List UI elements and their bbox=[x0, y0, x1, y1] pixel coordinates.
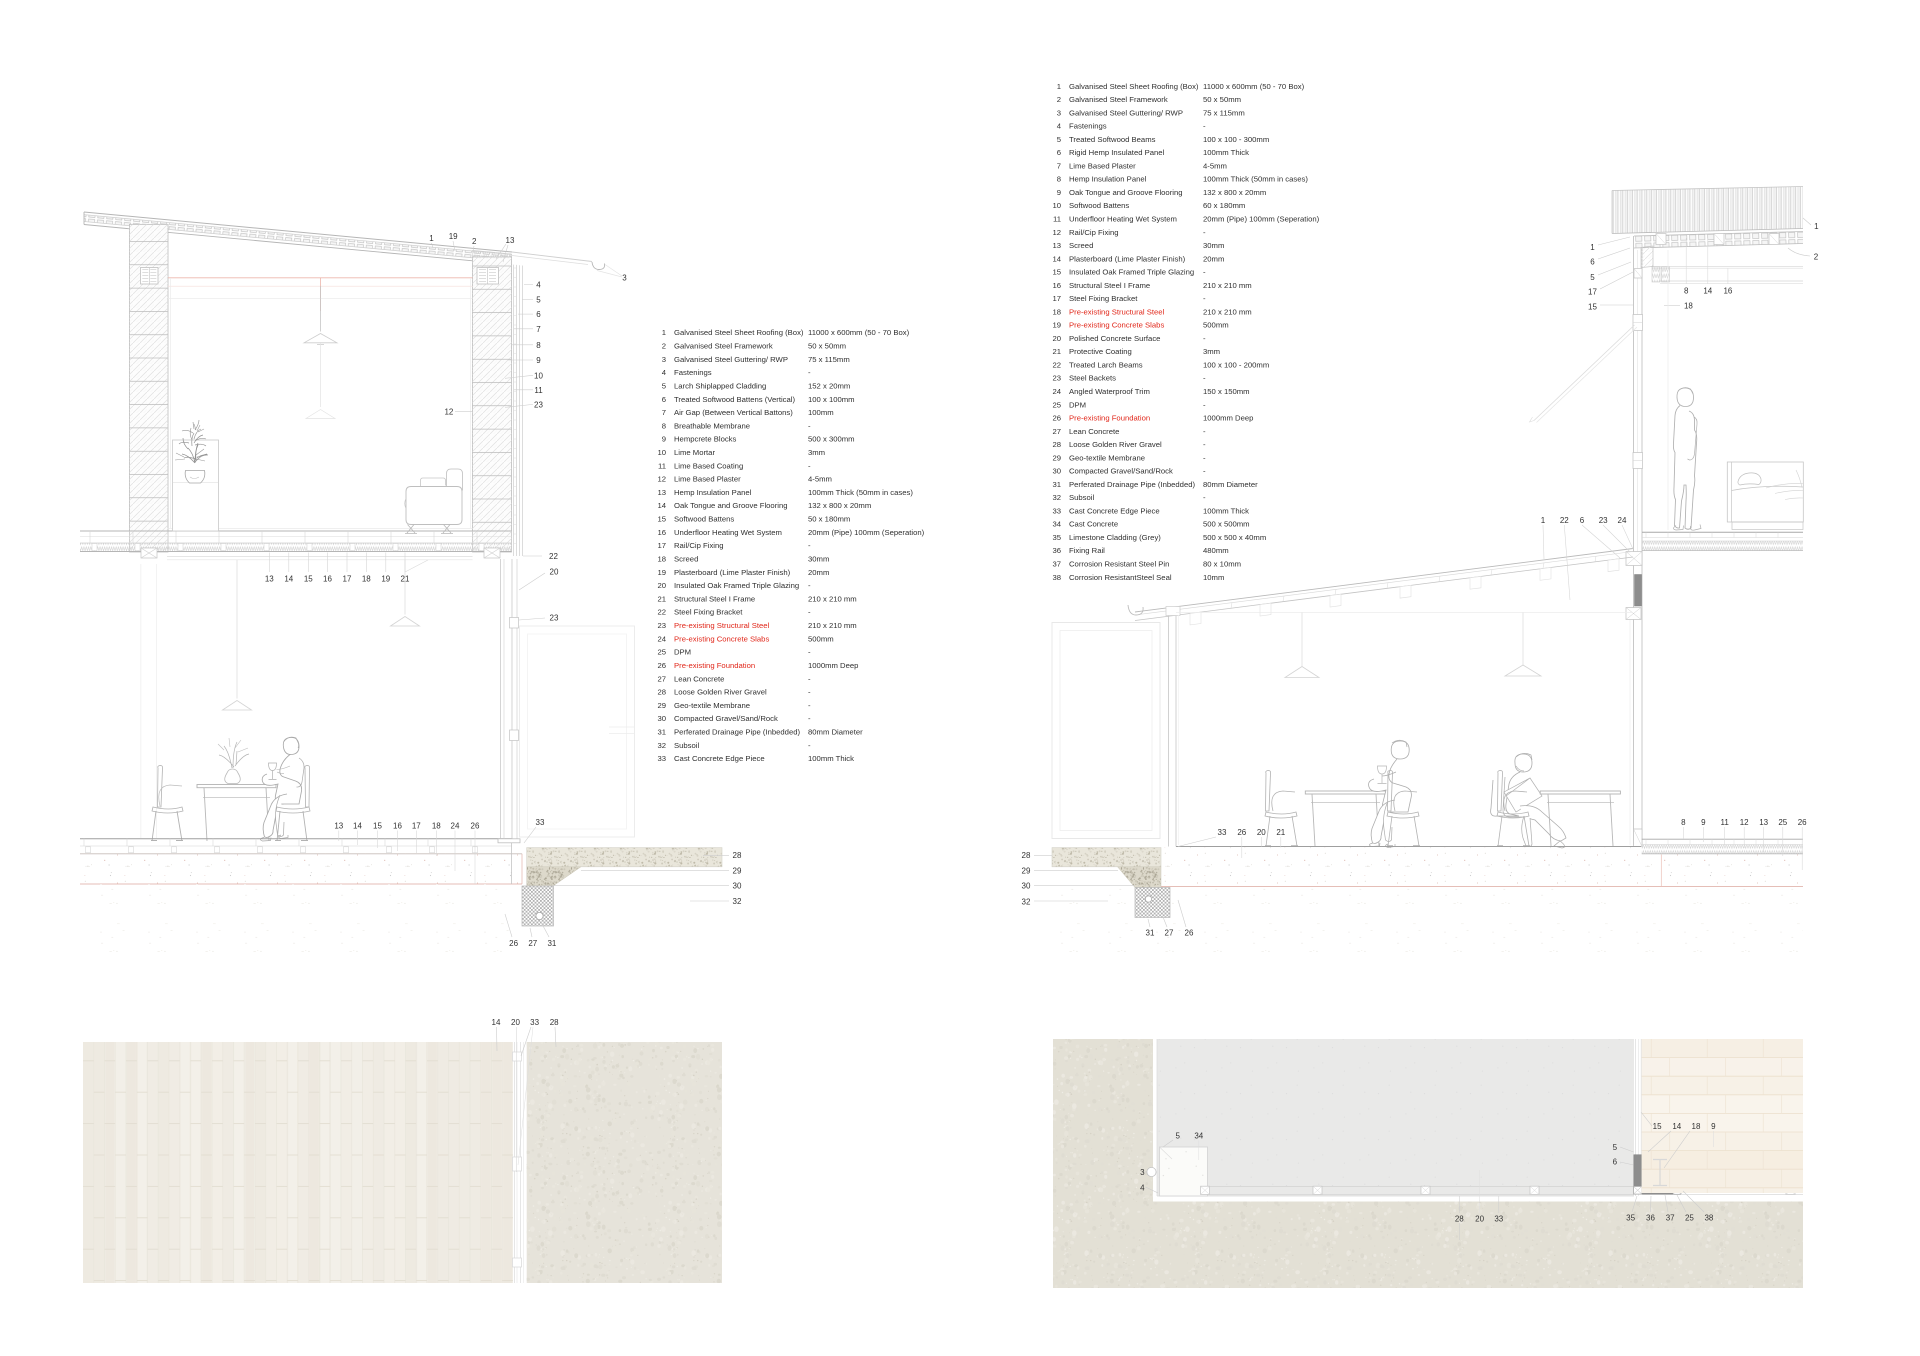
svg-text:28: 28 bbox=[733, 851, 742, 860]
svg-text:1: 1 bbox=[1814, 222, 1819, 231]
svg-text:24: 24 bbox=[1052, 387, 1061, 396]
svg-text:500mm: 500mm bbox=[1203, 321, 1229, 330]
svg-text:6: 6 bbox=[536, 310, 541, 319]
svg-text:7: 7 bbox=[536, 325, 541, 334]
svg-text:8: 8 bbox=[1681, 818, 1686, 827]
svg-text:14: 14 bbox=[1672, 1122, 1681, 1131]
svg-text:-: - bbox=[1203, 440, 1206, 449]
svg-text:Lime Mortar: Lime Mortar bbox=[674, 448, 715, 457]
svg-text:25: 25 bbox=[1052, 400, 1061, 409]
svg-text:Plasterboard (Lime Plaster Fin: Plasterboard (Lime Plaster Finish) bbox=[1069, 254, 1186, 263]
svg-text:2: 2 bbox=[472, 237, 477, 246]
svg-text:Perferated Drainage Pipe (Inbe: Perferated Drainage Pipe (Inbedded) bbox=[674, 728, 801, 737]
svg-text:9: 9 bbox=[536, 356, 541, 365]
svg-text:-: - bbox=[1203, 374, 1206, 383]
svg-text:100mm Thick: 100mm Thick bbox=[1203, 148, 1249, 157]
svg-text:20: 20 bbox=[1052, 334, 1061, 343]
svg-text:16: 16 bbox=[1723, 287, 1732, 296]
svg-text:80 x 10mm: 80 x 10mm bbox=[1203, 560, 1241, 569]
svg-text:Softwood Battens: Softwood Battens bbox=[1069, 201, 1129, 210]
svg-text:10: 10 bbox=[1052, 201, 1061, 210]
svg-text:15: 15 bbox=[1588, 303, 1597, 312]
svg-text:Limestone Cladding (Grey): Limestone Cladding (Grey) bbox=[1069, 533, 1161, 542]
svg-text:4: 4 bbox=[662, 368, 667, 377]
svg-text:33: 33 bbox=[530, 1018, 539, 1027]
svg-text:9: 9 bbox=[1701, 818, 1706, 827]
svg-text:11: 11 bbox=[534, 386, 543, 395]
svg-text:32: 32 bbox=[1022, 897, 1031, 906]
svg-text:-: - bbox=[1203, 122, 1206, 131]
svg-text:Breathable Membrane: Breathable Membrane bbox=[674, 421, 750, 430]
svg-text:25: 25 bbox=[1685, 1213, 1694, 1222]
svg-text:Galvanised Steel Framework: Galvanised Steel Framework bbox=[674, 342, 773, 351]
svg-text:6: 6 bbox=[1057, 148, 1061, 157]
svg-text:28: 28 bbox=[1455, 1214, 1464, 1223]
svg-text:Compacted Gravel/Sand/Rock: Compacted Gravel/Sand/Rock bbox=[1069, 467, 1173, 476]
svg-text:21: 21 bbox=[657, 594, 666, 603]
svg-text:31: 31 bbox=[657, 728, 666, 737]
svg-text:100 x 100mm: 100 x 100mm bbox=[808, 395, 855, 404]
svg-text:210 x 210 mm: 210 x 210 mm bbox=[1203, 307, 1252, 316]
svg-text:33: 33 bbox=[1494, 1214, 1503, 1223]
svg-text:8: 8 bbox=[1684, 287, 1689, 296]
svg-text:3: 3 bbox=[622, 274, 627, 283]
svg-text:13: 13 bbox=[506, 236, 515, 245]
svg-text:15: 15 bbox=[304, 575, 313, 584]
svg-text:20mm (Pipe) 100mm (Seperation): 20mm (Pipe) 100mm (Seperation) bbox=[1203, 215, 1320, 224]
svg-text:15: 15 bbox=[1653, 1122, 1662, 1131]
svg-text:100mm Thick (50mm in cases): 100mm Thick (50mm in cases) bbox=[1203, 175, 1308, 184]
svg-text:60 x 180mm: 60 x 180mm bbox=[1203, 201, 1245, 210]
svg-text:-: - bbox=[1203, 334, 1206, 343]
svg-text:23: 23 bbox=[550, 614, 559, 623]
svg-text:27: 27 bbox=[528, 939, 537, 948]
svg-text:33: 33 bbox=[657, 754, 666, 763]
svg-text:6: 6 bbox=[1580, 516, 1585, 525]
svg-text:13: 13 bbox=[1759, 818, 1768, 827]
svg-text:26: 26 bbox=[1798, 818, 1807, 827]
svg-text:26: 26 bbox=[471, 822, 480, 831]
svg-text:Hemp Insulation Panel: Hemp Insulation Panel bbox=[674, 488, 752, 497]
svg-text:35: 35 bbox=[1626, 1213, 1635, 1222]
svg-text:1: 1 bbox=[662, 328, 666, 337]
svg-text:30: 30 bbox=[733, 882, 742, 891]
svg-text:31: 31 bbox=[1146, 929, 1155, 938]
svg-text:-: - bbox=[808, 581, 811, 590]
svg-text:3: 3 bbox=[1057, 108, 1061, 117]
svg-text:19: 19 bbox=[381, 575, 390, 584]
svg-text:28: 28 bbox=[657, 688, 666, 697]
svg-text:11: 11 bbox=[658, 461, 666, 470]
svg-text:1: 1 bbox=[1057, 82, 1061, 91]
svg-text:20: 20 bbox=[657, 581, 666, 590]
svg-text:21: 21 bbox=[1052, 347, 1061, 356]
svg-text:500 x 300mm: 500 x 300mm bbox=[808, 435, 855, 444]
svg-text:16: 16 bbox=[1052, 281, 1061, 290]
svg-text:Softwood Battens: Softwood Battens bbox=[674, 515, 734, 524]
svg-text:26: 26 bbox=[1185, 929, 1194, 938]
svg-text:80mm Diameter: 80mm Diameter bbox=[1203, 480, 1258, 489]
svg-text:1: 1 bbox=[1541, 516, 1546, 525]
svg-text:Galvanised Steel Framework: Galvanised Steel Framework bbox=[1069, 95, 1168, 104]
svg-text:Loose Golden River Gravel: Loose Golden River Gravel bbox=[1069, 440, 1162, 449]
svg-text:Rail/Cip Fixing: Rail/Cip Fixing bbox=[1069, 228, 1119, 237]
svg-text:32: 32 bbox=[1052, 493, 1061, 502]
svg-text:16: 16 bbox=[323, 575, 332, 584]
svg-text:Galvanised Steel Guttering/ RW: Galvanised Steel Guttering/ RWP bbox=[674, 355, 788, 364]
svg-text:17: 17 bbox=[1052, 294, 1061, 303]
svg-text:13: 13 bbox=[265, 575, 274, 584]
svg-text:Oak Tongue and Groove Flooring: Oak Tongue and Groove Flooring bbox=[674, 501, 788, 510]
svg-text:-: - bbox=[808, 648, 811, 657]
svg-text:Hemp Insulation Panel: Hemp Insulation Panel bbox=[1069, 175, 1147, 184]
svg-text:480mm: 480mm bbox=[1203, 546, 1229, 555]
svg-text:30: 30 bbox=[1052, 467, 1061, 476]
svg-text:18: 18 bbox=[1692, 1122, 1701, 1131]
svg-text:Steel Fixing Bracket: Steel Fixing Bracket bbox=[674, 608, 743, 617]
svg-text:15: 15 bbox=[1052, 268, 1061, 277]
svg-text:9: 9 bbox=[1057, 188, 1061, 197]
svg-text:Galvanised Steel Sheet Roofing: Galvanised Steel Sheet Roofing (Box) bbox=[674, 328, 804, 337]
svg-text:24: 24 bbox=[657, 634, 666, 643]
svg-text:500mm: 500mm bbox=[808, 634, 834, 643]
svg-text:12: 12 bbox=[657, 475, 666, 484]
svg-text:8: 8 bbox=[1057, 175, 1061, 184]
svg-text:28: 28 bbox=[1022, 851, 1031, 860]
svg-text:16: 16 bbox=[393, 822, 402, 831]
svg-text:-: - bbox=[1203, 427, 1206, 436]
svg-text:12: 12 bbox=[1740, 818, 1749, 827]
svg-text:6: 6 bbox=[1613, 1158, 1618, 1167]
svg-text:9: 9 bbox=[662, 435, 666, 444]
svg-text:Treated Softwood Beams: Treated Softwood Beams bbox=[1069, 135, 1156, 144]
svg-text:20mm: 20mm bbox=[1203, 254, 1224, 263]
svg-text:10mm: 10mm bbox=[1203, 573, 1224, 582]
svg-text:Structural Steel I Frame: Structural Steel I Frame bbox=[1069, 281, 1150, 290]
svg-text:Galvanised Steel Guttering/ RW: Galvanised Steel Guttering/ RWP bbox=[1069, 108, 1183, 117]
svg-text:11: 11 bbox=[1721, 818, 1730, 827]
svg-text:75 x 115mm: 75 x 115mm bbox=[808, 355, 850, 364]
svg-text:37: 37 bbox=[1666, 1213, 1675, 1222]
svg-text:100mm Thick: 100mm Thick bbox=[1203, 506, 1249, 515]
svg-text:32: 32 bbox=[733, 897, 742, 906]
svg-text:17: 17 bbox=[657, 541, 666, 550]
svg-text:-: - bbox=[1203, 400, 1206, 409]
svg-text:Pre-existing Structural Steel: Pre-existing Structural Steel bbox=[674, 621, 770, 630]
svg-text:15: 15 bbox=[373, 822, 382, 831]
svg-text:13: 13 bbox=[1052, 241, 1061, 250]
svg-text:20: 20 bbox=[550, 568, 559, 577]
svg-text:20: 20 bbox=[1475, 1214, 1484, 1223]
svg-text:500 x 500 x 40mm: 500 x 500 x 40mm bbox=[1203, 533, 1266, 542]
svg-text:210 x 210 mm: 210 x 210 mm bbox=[808, 594, 857, 603]
svg-text:20mm: 20mm bbox=[808, 568, 829, 577]
svg-text:Geo-textile Membrane: Geo-textile Membrane bbox=[1069, 453, 1145, 462]
svg-text:33: 33 bbox=[536, 818, 545, 827]
svg-text:14: 14 bbox=[353, 822, 362, 831]
svg-text:3: 3 bbox=[662, 355, 666, 364]
svg-text:Corrosion Resistant Steel Pin: Corrosion Resistant Steel Pin bbox=[1069, 560, 1169, 569]
svg-text:-: - bbox=[808, 608, 811, 617]
svg-text:14: 14 bbox=[1052, 254, 1061, 263]
svg-text:Underfloor Heating Wet System: Underfloor Heating Wet System bbox=[1069, 215, 1177, 224]
svg-text:Pre-existing Structural Steel: Pre-existing Structural Steel bbox=[1069, 307, 1165, 316]
svg-text:Screed: Screed bbox=[1069, 241, 1093, 250]
svg-text:34: 34 bbox=[1052, 520, 1061, 529]
svg-text:7: 7 bbox=[1057, 161, 1061, 170]
svg-text:23: 23 bbox=[534, 400, 543, 409]
svg-text:152 x 20mm: 152 x 20mm bbox=[808, 381, 850, 390]
svg-text:-: - bbox=[808, 368, 811, 377]
svg-text:Insulated Oak Framed Triple Gl: Insulated Oak Framed Triple Glazing bbox=[674, 581, 799, 590]
svg-text:27: 27 bbox=[1165, 929, 1174, 938]
svg-text:6: 6 bbox=[1590, 258, 1595, 267]
svg-text:35: 35 bbox=[1052, 533, 1061, 542]
svg-text:38: 38 bbox=[1704, 1213, 1713, 1222]
svg-text:12: 12 bbox=[444, 408, 453, 417]
svg-text:Polished Concrete Surface: Polished Concrete Surface bbox=[1069, 334, 1160, 343]
svg-text:30: 30 bbox=[1022, 882, 1031, 891]
svg-text:132 x 800 x 20mm: 132 x 800 x 20mm bbox=[1203, 188, 1266, 197]
svg-text:1000mm Deep: 1000mm Deep bbox=[1203, 414, 1253, 423]
svg-text:27: 27 bbox=[1052, 427, 1061, 436]
svg-text:23: 23 bbox=[1599, 516, 1608, 525]
svg-text:9: 9 bbox=[1711, 1122, 1716, 1131]
svg-text:8: 8 bbox=[662, 421, 666, 430]
svg-text:24: 24 bbox=[451, 822, 460, 831]
svg-text:18: 18 bbox=[432, 822, 441, 831]
svg-text:1000mm Deep: 1000mm Deep bbox=[808, 661, 858, 670]
svg-text:17: 17 bbox=[1588, 288, 1597, 297]
svg-text:-: - bbox=[1203, 228, 1206, 237]
svg-text:Geo-textile Membrane: Geo-textile Membrane bbox=[674, 701, 750, 710]
svg-text:36: 36 bbox=[1646, 1213, 1655, 1222]
svg-text:33: 33 bbox=[1218, 828, 1227, 837]
svg-text:500 x 500mm: 500 x 500mm bbox=[1203, 520, 1250, 529]
svg-text:5: 5 bbox=[536, 296, 541, 305]
svg-text:75 x 115mm: 75 x 115mm bbox=[1203, 108, 1245, 117]
svg-text:-: - bbox=[808, 541, 811, 550]
svg-text:Steel Backets: Steel Backets bbox=[1069, 374, 1116, 383]
svg-text:26: 26 bbox=[1052, 414, 1061, 423]
svg-text:38: 38 bbox=[1052, 573, 1061, 582]
svg-text:17: 17 bbox=[343, 575, 352, 584]
svg-text:Cast Concrete Edge Piece: Cast Concrete Edge Piece bbox=[1069, 506, 1160, 515]
svg-text:Loose Golden River Gravel: Loose Golden River Gravel bbox=[674, 688, 767, 697]
svg-text:1: 1 bbox=[429, 234, 434, 243]
svg-text:Larch Shiplapped Cladding: Larch Shiplapped Cladding bbox=[674, 381, 766, 390]
svg-text:100 x 100 - 200mm: 100 x 100 - 200mm bbox=[1203, 361, 1269, 370]
svg-text:20: 20 bbox=[1257, 828, 1266, 837]
svg-text:DPM: DPM bbox=[1069, 400, 1086, 409]
svg-text:11: 11 bbox=[1053, 215, 1061, 224]
svg-text:34: 34 bbox=[1194, 1131, 1203, 1140]
svg-text:100 x 100 - 300mm: 100 x 100 - 300mm bbox=[1203, 135, 1269, 144]
svg-text:Angled Waterproof Trim: Angled Waterproof Trim bbox=[1069, 387, 1150, 396]
svg-text:210 x 210 mm: 210 x 210 mm bbox=[1203, 281, 1252, 290]
svg-text:2: 2 bbox=[1814, 253, 1819, 262]
svg-text:17: 17 bbox=[412, 822, 421, 831]
svg-text:Lime Based Plaster: Lime Based Plaster bbox=[1069, 161, 1136, 170]
svg-text:18: 18 bbox=[657, 555, 666, 564]
svg-text:4: 4 bbox=[1057, 122, 1062, 131]
svg-text:-: - bbox=[808, 714, 811, 723]
svg-text:22: 22 bbox=[1560, 516, 1569, 525]
svg-text:5: 5 bbox=[1590, 273, 1595, 282]
svg-text:19: 19 bbox=[1052, 321, 1061, 330]
svg-text:10: 10 bbox=[534, 371, 543, 380]
svg-text:100mm Thick (50mm in cases): 100mm Thick (50mm in cases) bbox=[808, 488, 913, 497]
svg-text:4-5mm: 4-5mm bbox=[808, 475, 832, 484]
svg-text:31: 31 bbox=[547, 939, 556, 948]
svg-text:29: 29 bbox=[733, 866, 742, 875]
svg-text:Air Gap (Between Vertical Batt: Air Gap (Between Vertical Battons) bbox=[674, 408, 793, 417]
svg-text:Lean Concrete: Lean Concrete bbox=[1069, 427, 1119, 436]
svg-text:132 x 800 x 20mm: 132 x 800 x 20mm bbox=[808, 501, 871, 510]
svg-text:36: 36 bbox=[1052, 546, 1061, 555]
svg-text:-: - bbox=[1203, 268, 1206, 277]
svg-text:4: 4 bbox=[1140, 1183, 1145, 1192]
svg-text:Corrosion ResistantSteel Seal: Corrosion ResistantSteel Seal bbox=[1069, 573, 1172, 582]
svg-text:4: 4 bbox=[536, 280, 541, 289]
svg-text:Treated Softwood Battens (Vert: Treated Softwood Battens (Vertical) bbox=[674, 395, 796, 404]
svg-text:Protective Coating: Protective Coating bbox=[1069, 347, 1132, 356]
svg-text:Plasterboard (Lime Plaster Fin: Plasterboard (Lime Plaster Finish) bbox=[674, 568, 791, 577]
svg-text:Subsoil: Subsoil bbox=[1069, 493, 1095, 502]
svg-text:Cast Concrete: Cast Concrete bbox=[1069, 520, 1118, 529]
svg-text:18: 18 bbox=[1684, 301, 1693, 310]
svg-text:Structural Steel I Frame: Structural Steel I Frame bbox=[674, 594, 755, 603]
svg-text:5: 5 bbox=[1175, 1131, 1180, 1140]
svg-text:13: 13 bbox=[657, 488, 666, 497]
svg-text:-: - bbox=[808, 741, 811, 750]
svg-text:6: 6 bbox=[662, 395, 666, 404]
svg-text:33: 33 bbox=[1052, 506, 1061, 515]
svg-text:-: - bbox=[808, 421, 811, 430]
svg-text:Hempcrete Blocks: Hempcrete Blocks bbox=[674, 435, 737, 444]
svg-text:210 x 210 mm: 210 x 210 mm bbox=[808, 621, 857, 630]
svg-text:4-5mm: 4-5mm bbox=[1203, 161, 1227, 170]
svg-text:-: - bbox=[1203, 493, 1206, 502]
svg-text:28: 28 bbox=[1052, 440, 1061, 449]
svg-text:25: 25 bbox=[1778, 818, 1787, 827]
svg-text:20: 20 bbox=[511, 1018, 520, 1027]
svg-text:-: - bbox=[808, 701, 811, 710]
svg-text:Pre-existing Concrete Slabs: Pre-existing Concrete Slabs bbox=[674, 634, 769, 643]
svg-text:-: - bbox=[1203, 294, 1206, 303]
svg-text:Treated Larch Beams: Treated Larch Beams bbox=[1069, 361, 1143, 370]
svg-text:Subsoil: Subsoil bbox=[674, 741, 700, 750]
svg-text:1: 1 bbox=[1590, 243, 1595, 252]
svg-text:Insulated Oak Framed Triple Gl: Insulated Oak Framed Triple Glazing bbox=[1069, 268, 1194, 277]
svg-text:22: 22 bbox=[1052, 361, 1061, 370]
svg-text:-: - bbox=[808, 674, 811, 683]
svg-text:Rail/Cip Fixing: Rail/Cip Fixing bbox=[674, 541, 724, 550]
svg-text:2: 2 bbox=[1057, 95, 1061, 104]
svg-text:23: 23 bbox=[1052, 374, 1061, 383]
svg-text:37: 37 bbox=[1052, 560, 1061, 569]
svg-text:100mm: 100mm bbox=[808, 408, 834, 417]
svg-text:80mm Diameter: 80mm Diameter bbox=[808, 728, 863, 737]
svg-text:5: 5 bbox=[662, 381, 666, 390]
svg-text:14: 14 bbox=[657, 501, 666, 510]
svg-text:-: - bbox=[1203, 453, 1206, 462]
svg-text:Lime Based Coating: Lime Based Coating bbox=[674, 461, 743, 470]
svg-text:Lime Based Plaster: Lime Based Plaster bbox=[674, 475, 741, 484]
svg-text:24: 24 bbox=[1618, 516, 1627, 525]
svg-text:19: 19 bbox=[657, 568, 666, 577]
svg-text:5: 5 bbox=[1613, 1143, 1618, 1152]
svg-text:5: 5 bbox=[1057, 135, 1061, 144]
svg-text:20mm (Pipe) 100mm (Seperation): 20mm (Pipe) 100mm (Seperation) bbox=[808, 528, 925, 537]
svg-text:7: 7 bbox=[662, 408, 666, 417]
svg-text:18: 18 bbox=[1052, 307, 1061, 316]
svg-text:2: 2 bbox=[662, 342, 666, 351]
svg-text:10: 10 bbox=[657, 448, 666, 457]
svg-text:DPM: DPM bbox=[674, 648, 691, 657]
svg-text:30mm: 30mm bbox=[808, 555, 829, 564]
svg-text:Pre-existing Concrete Slabs: Pre-existing Concrete Slabs bbox=[1069, 321, 1164, 330]
svg-text:14: 14 bbox=[1703, 287, 1712, 296]
svg-text:26: 26 bbox=[1237, 828, 1246, 837]
svg-text:8: 8 bbox=[536, 341, 541, 350]
svg-text:26: 26 bbox=[657, 661, 666, 670]
svg-text:28: 28 bbox=[550, 1018, 559, 1027]
svg-text:100mm Thick: 100mm Thick bbox=[808, 754, 854, 763]
svg-text:19: 19 bbox=[449, 232, 458, 241]
svg-text:Compacted Gravel/Sand/Rock: Compacted Gravel/Sand/Rock bbox=[674, 714, 778, 723]
svg-text:Rigid Hemp Insulated Panel: Rigid Hemp Insulated Panel bbox=[1069, 148, 1165, 157]
svg-text:12: 12 bbox=[1052, 228, 1061, 237]
svg-text:30: 30 bbox=[657, 714, 666, 723]
svg-text:3mm: 3mm bbox=[808, 448, 825, 457]
svg-text:Fixing Rail: Fixing Rail bbox=[1069, 546, 1105, 555]
svg-text:50 x 50mm: 50 x 50mm bbox=[808, 342, 846, 351]
svg-text:Oak Tongue and Groove Flooring: Oak Tongue and Groove Flooring bbox=[1069, 188, 1183, 197]
svg-text:Lean Concrete: Lean Concrete bbox=[674, 674, 724, 683]
svg-text:3: 3 bbox=[1140, 1168, 1145, 1177]
svg-text:23: 23 bbox=[657, 621, 666, 630]
svg-text:-: - bbox=[1203, 467, 1206, 476]
svg-text:31: 31 bbox=[1052, 480, 1061, 489]
svg-text:Screed: Screed bbox=[674, 555, 698, 564]
svg-text:29: 29 bbox=[1052, 453, 1061, 462]
svg-text:21: 21 bbox=[1276, 828, 1285, 837]
svg-text:50 x 50mm: 50 x 50mm bbox=[1203, 95, 1241, 104]
svg-text:Fastenings: Fastenings bbox=[1069, 122, 1107, 131]
svg-text:25: 25 bbox=[657, 648, 666, 657]
svg-text:27: 27 bbox=[657, 674, 666, 683]
svg-text:13: 13 bbox=[334, 822, 343, 831]
svg-text:50 x 180mm: 50 x 180mm bbox=[808, 515, 850, 524]
svg-text:30mm: 30mm bbox=[1203, 241, 1224, 250]
svg-text:32: 32 bbox=[657, 741, 666, 750]
svg-text:Galvanised Steel Sheet Roofing: Galvanised Steel Sheet Roofing (Box) bbox=[1069, 82, 1199, 91]
svg-text:150 x 150mm: 150 x 150mm bbox=[1203, 387, 1250, 396]
svg-text:29: 29 bbox=[1022, 866, 1031, 875]
svg-text:-: - bbox=[808, 688, 811, 697]
svg-text:Steel Fixing Bracket: Steel Fixing Bracket bbox=[1069, 294, 1138, 303]
svg-text:11000 x 600mm (50 - 70 Box): 11000 x 600mm (50 - 70 Box) bbox=[1203, 82, 1305, 91]
svg-text:11000 x 600mm (50 - 70 Box): 11000 x 600mm (50 - 70 Box) bbox=[808, 328, 910, 337]
svg-text:14: 14 bbox=[284, 575, 293, 584]
svg-text:-: - bbox=[808, 461, 811, 470]
svg-text:Pre-existing Foundation: Pre-existing Foundation bbox=[674, 661, 755, 670]
svg-text:16: 16 bbox=[657, 528, 666, 537]
svg-text:Fastenings: Fastenings bbox=[674, 368, 712, 377]
svg-text:3mm: 3mm bbox=[1203, 347, 1220, 356]
svg-text:Pre-existing Foundation: Pre-existing Foundation bbox=[1069, 414, 1150, 423]
